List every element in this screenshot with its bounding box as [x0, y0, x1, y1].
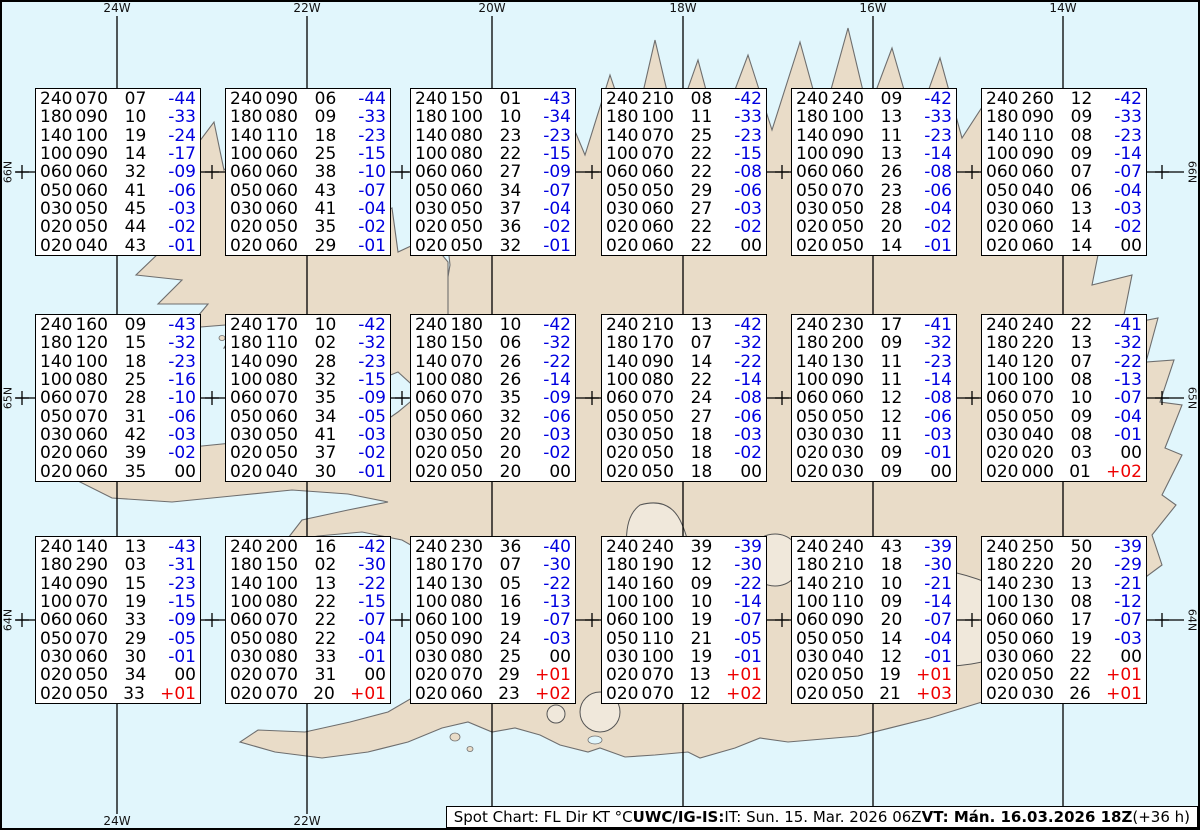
wind-direction: 050 — [831, 666, 863, 684]
flight-level-and-direction: 240210 — [606, 316, 674, 334]
flight-level-and-direction: 050050 — [796, 630, 864, 648]
flight-level-and-direction: 240090 — [230, 90, 298, 108]
flight-level-and-direction: 100080 — [230, 593, 298, 611]
temperature-c: -02 — [729, 444, 762, 462]
wind-speed-kt: 13 — [881, 108, 903, 126]
wind-direction: 070 — [641, 666, 673, 684]
wind-direction: 060 — [265, 200, 297, 218]
wind-direction: 050 — [265, 444, 297, 462]
wind-speed-kt: 20 — [500, 444, 522, 462]
temperature-c: -01 — [163, 237, 196, 255]
flight-level: 240 — [230, 538, 262, 556]
temperature-c: -14 — [729, 593, 762, 611]
spot-line-fl050: 05006041-06 — [40, 182, 196, 200]
wind-direction: 070 — [641, 685, 673, 703]
spot-line-fl100: 10008022-15 — [230, 593, 386, 611]
wind-speed-kt: 32 — [125, 163, 147, 181]
lon-label-top-14W: 14W — [1049, 1, 1076, 15]
wind-speed-kt: 19 — [125, 127, 147, 145]
temperature-c: -01 — [353, 463, 386, 481]
flight-level: 140 — [415, 353, 447, 371]
spot-line-fl020: 0200703100 — [230, 666, 386, 684]
flight-level: 030 — [796, 648, 828, 666]
flight-level-and-direction: 030030 — [796, 426, 864, 444]
spot-line-fl060: 06007022-07 — [230, 611, 386, 629]
flight-level-and-direction: 020060 — [606, 218, 674, 236]
wind-direction: 050 — [450, 463, 482, 481]
temperature-c: +01 — [350, 685, 386, 703]
flight-level-and-direction: 030080 — [415, 648, 483, 666]
wind-speed-kt: 17 — [881, 316, 903, 334]
wind-speed-kt: 29 — [498, 666, 520, 684]
temperature-c: -23 — [163, 353, 196, 371]
flight-level-and-direction: 020040 — [40, 237, 108, 255]
wind-speed-kt: 37 — [315, 444, 337, 462]
spot-line-fl180: 18020009-32 — [796, 334, 952, 352]
temperature-c: 00 — [538, 648, 571, 666]
flight-level-and-direction: 180120 — [40, 334, 108, 352]
wind-direction: 050 — [641, 182, 673, 200]
wind-speed-kt: 13 — [1071, 575, 1093, 593]
flight-level-and-direction: 240250 — [986, 538, 1054, 556]
spot-line-fl240: 24018010-42 — [415, 316, 571, 334]
flight-level: 020 — [986, 218, 1018, 236]
spot-line-fl240: 24024039-39 — [606, 538, 762, 556]
flight-level-and-direction: 180150 — [415, 334, 483, 352]
wind-speed-kt: 22 — [1071, 316, 1093, 334]
wind-speed-kt: 50 — [1071, 538, 1093, 556]
flight-level: 030 — [230, 200, 262, 218]
flight-level-and-direction: 180200 — [796, 334, 864, 352]
flight-level-and-direction: 030060 — [986, 200, 1054, 218]
spot-line-fl060: 06007010-07 — [986, 389, 1142, 407]
wind-direction: 060 — [1021, 218, 1053, 236]
wind-speed-kt: 39 — [125, 444, 147, 462]
flight-level: 020 — [796, 463, 828, 481]
temperature-c: +01 — [160, 685, 196, 703]
spot-line-fl020: 02004030-01 — [230, 463, 386, 481]
flight-level: 100 — [40, 593, 72, 611]
spot-box-65N-14W: 24024022-4118022013-3214012007-221001000… — [981, 314, 1147, 482]
wind-direction: 050 — [75, 218, 107, 236]
flight-level: 020 — [606, 444, 638, 462]
wind-speed-kt: 09 — [315, 108, 337, 126]
wind-direction: 110 — [265, 334, 297, 352]
temperature-c: -06 — [163, 182, 196, 200]
flight-level-and-direction: 030060 — [986, 648, 1054, 666]
temperature-c: +03 — [916, 685, 952, 703]
temperature-c: -31 — [163, 556, 196, 574]
flight-level-and-direction: 100100 — [606, 593, 674, 611]
temperature-c: -14 — [919, 593, 952, 611]
flight-level: 180 — [986, 334, 1018, 352]
wind-direction: 070 — [831, 182, 863, 200]
caption-center: UWC/IG-IS: — [633, 808, 725, 826]
spot-line-fl030: 03005028-04 — [796, 200, 952, 218]
flight-level: 100 — [415, 593, 447, 611]
spot-line-fl140: 14009028-23 — [230, 353, 386, 371]
wind-direction: 100 — [641, 108, 673, 126]
temperature-c: -29 — [1109, 556, 1142, 574]
flight-level-and-direction: 100090 — [796, 371, 864, 389]
spot-line-fl030: 03006042-03 — [40, 426, 196, 444]
temperature-c: 00 — [1109, 237, 1142, 255]
flight-level: 060 — [986, 611, 1018, 629]
spot-line-fl240: 24023017-41 — [796, 316, 952, 334]
temperature-c: -15 — [729, 145, 762, 163]
flight-level-and-direction: 060100 — [606, 611, 674, 629]
temperature-c: -05 — [353, 408, 386, 426]
spot-line-fl060: 06009020-07 — [796, 611, 952, 629]
flight-level-and-direction: 050060 — [986, 630, 1054, 648]
wind-direction: 130 — [831, 353, 863, 371]
spot-line-fl140: 14021010-21 — [796, 575, 952, 593]
flight-level: 060 — [415, 389, 447, 407]
flight-level: 050 — [606, 408, 638, 426]
wind-direction: 150 — [265, 556, 297, 574]
spot-line-fl050: 05009024-03 — [415, 630, 571, 648]
wind-speed-kt: 10 — [691, 593, 713, 611]
spot-line-fl020: 02005022+01 — [986, 666, 1142, 684]
wind-speed-kt: 02 — [315, 334, 337, 352]
temperature-c: -09 — [163, 163, 196, 181]
spot-line-fl100: 10011009-14 — [796, 593, 952, 611]
temperature-c: -10 — [353, 163, 386, 181]
temperature-c: -39 — [919, 538, 952, 556]
wind-speed-kt: 10 — [500, 316, 522, 334]
flight-level-and-direction: 060070 — [40, 389, 108, 407]
spot-line-fl020: 02007020+01 — [230, 685, 386, 703]
spot-box-65N-20W: 24018010-4218015006-3214007026-221000802… — [410, 314, 576, 482]
wind-speed-kt: 10 — [125, 108, 147, 126]
flight-level-and-direction: 050070 — [796, 182, 864, 200]
flight-level: 020 — [796, 685, 828, 703]
wind-speed-kt: 12 — [691, 556, 713, 574]
wind-speed-kt: 19 — [125, 593, 147, 611]
wind-direction: 100 — [1021, 371, 1053, 389]
spot-line-fl180: 18012015-32 — [40, 334, 196, 352]
flight-level: 100 — [606, 593, 638, 611]
flight-level-and-direction: 140110 — [986, 127, 1054, 145]
flight-level: 020 — [40, 444, 72, 462]
flight-level: 180 — [986, 108, 1018, 126]
wind-speed-kt: 45 — [125, 200, 147, 218]
wind-speed-kt: 27 — [691, 200, 713, 218]
spot-line-fl140: 14010018-23 — [40, 353, 196, 371]
wind-direction: 080 — [450, 145, 482, 163]
wind-direction: 020 — [1021, 444, 1053, 462]
flight-level: 060 — [415, 163, 447, 181]
temperature-c: -33 — [163, 108, 196, 126]
flight-level: 060 — [40, 611, 72, 629]
temperature-c: -14 — [919, 145, 952, 163]
spot-line-fl100: 10008026-14 — [415, 371, 571, 389]
temperature-c: -15 — [163, 593, 196, 611]
flight-level-and-direction: 140090 — [796, 127, 864, 145]
wind-speed-kt: 22 — [691, 218, 713, 236]
wind-direction: 070 — [641, 127, 673, 145]
spot-line-fl060: 06006027-09 — [415, 163, 571, 181]
flight-level-and-direction: 240150 — [415, 90, 483, 108]
spot-line-fl020: 02000001+02 — [986, 463, 1142, 481]
temperature-c: -07 — [1109, 163, 1142, 181]
wind-speed-kt: 29 — [691, 182, 713, 200]
wind-speed-kt: 33 — [123, 685, 145, 703]
temperature-c: -02 — [919, 218, 952, 236]
temperature-c: -06 — [538, 408, 571, 426]
wind-direction: 180 — [450, 316, 482, 334]
temperature-c: -05 — [729, 630, 762, 648]
flight-level: 140 — [415, 127, 447, 145]
flight-level: 240 — [796, 90, 828, 108]
spot-line-fl180: 18017007-30 — [415, 556, 571, 574]
flight-level-and-direction: 020070 — [230, 666, 298, 684]
flight-level-and-direction: 100060 — [230, 145, 298, 163]
wind-direction: 070 — [265, 666, 297, 684]
flight-level: 020 — [230, 666, 262, 684]
wind-speed-kt: 19 — [879, 666, 901, 684]
flight-level-and-direction: 030050 — [606, 426, 674, 444]
wind-direction: 050 — [265, 218, 297, 236]
flight-level: 050 — [415, 630, 447, 648]
spot-line-fl240: 24024022-41 — [986, 316, 1142, 334]
flight-level-and-direction: 020060 — [40, 444, 108, 462]
flight-level-and-direction: 020070 — [415, 666, 483, 684]
wind-speed-kt: 24 — [500, 630, 522, 648]
flight-level: 100 — [606, 145, 638, 163]
wind-speed-kt: 34 — [315, 408, 337, 426]
spot-box-65N-24W: 24016009-4318012015-3214010018-231000802… — [35, 314, 201, 482]
temperature-c: -03 — [729, 200, 762, 218]
wind-direction: 070 — [75, 389, 107, 407]
spot-line-fl140: 14013011-23 — [796, 353, 952, 371]
spot-line-fl180: 18015006-32 — [415, 334, 571, 352]
lon-label-top-18W: 18W — [669, 1, 696, 15]
flight-level-and-direction: 100080 — [415, 371, 483, 389]
temperature-c: -22 — [538, 575, 571, 593]
flight-level: 140 — [986, 353, 1018, 371]
wind-speed-kt: 18 — [691, 444, 713, 462]
flight-level: 140 — [230, 575, 262, 593]
flight-level-and-direction: 180220 — [986, 334, 1054, 352]
wind-direction: 070 — [265, 611, 297, 629]
flight-level: 050 — [986, 630, 1018, 648]
flight-level: 020 — [230, 218, 262, 236]
wind-direction: 070 — [450, 666, 482, 684]
wind-speed-kt: 12 — [1071, 90, 1093, 108]
lon-label-bottom-22W: 22W — [293, 814, 320, 828]
flight-level: 180 — [230, 334, 262, 352]
spot-box-66N-14W: 24026012-4218009009-3314011008-231000900… — [981, 88, 1147, 256]
temperature-c: -23 — [538, 127, 571, 145]
flight-level-and-direction: 050090 — [415, 630, 483, 648]
wind-direction: 260 — [1021, 90, 1053, 108]
wind-direction: 250 — [1021, 538, 1053, 556]
spot-line-fl180: 18019012-30 — [606, 556, 762, 574]
flight-level-and-direction: 240210 — [606, 90, 674, 108]
wind-direction: 060 — [450, 182, 482, 200]
temperature-c: 00 — [1109, 648, 1142, 666]
flight-level: 050 — [606, 182, 638, 200]
wind-direction: 240 — [1021, 316, 1053, 334]
flight-level-and-direction: 240240 — [796, 90, 864, 108]
flight-level-and-direction: 030040 — [986, 426, 1054, 444]
flight-level-and-direction: 020050 — [606, 463, 674, 481]
wind-direction: 040 — [831, 648, 863, 666]
wind-direction: 060 — [75, 444, 107, 462]
wind-speed-kt: 14 — [881, 630, 903, 648]
wind-direction: 170 — [641, 334, 673, 352]
flight-level-and-direction: 180170 — [606, 334, 674, 352]
flight-level-and-direction: 020060 — [986, 218, 1054, 236]
spot-line-fl140: 14010019-24 — [40, 127, 196, 145]
wind-speed-kt: 02 — [315, 556, 337, 574]
wind-direction: 070 — [450, 389, 482, 407]
wind-speed-kt: 11 — [881, 353, 903, 371]
temperature-c: -01 — [163, 648, 196, 666]
spot-line-fl240: 24007007-44 — [40, 90, 196, 108]
temperature-c: -23 — [919, 353, 952, 371]
wind-speed-kt: 09 — [1071, 108, 1093, 126]
flight-level: 020 — [230, 444, 262, 462]
temperature-c: -08 — [729, 389, 762, 407]
flight-level: 020 — [796, 444, 828, 462]
flight-level: 030 — [606, 648, 638, 666]
flight-level-and-direction: 140070 — [415, 353, 483, 371]
temperature-c: 00 — [919, 463, 952, 481]
spot-line-fl060: 06010019-07 — [606, 611, 762, 629]
wind-speed-kt: 01 — [1069, 463, 1091, 481]
flight-level: 020 — [986, 463, 1018, 481]
flight-level: 060 — [40, 163, 72, 181]
temperature-c: -32 — [919, 334, 952, 352]
wind-speed-kt: 32 — [500, 408, 522, 426]
wind-direction: 090 — [831, 611, 863, 629]
spot-line-fl020: 02005020-02 — [796, 218, 952, 236]
flight-level-and-direction: 240200 — [230, 538, 298, 556]
flight-level-and-direction: 180150 — [230, 556, 298, 574]
lon-label-bottom-24W: 24W — [103, 814, 130, 828]
temperature-c: -09 — [538, 163, 571, 181]
flight-level-and-direction: 050060 — [40, 182, 108, 200]
wind-direction: 050 — [1021, 408, 1053, 426]
wind-direction: 060 — [75, 611, 107, 629]
wind-direction: 080 — [265, 371, 297, 389]
flight-level: 180 — [796, 108, 828, 126]
spot-line-fl100: 10008032-15 — [230, 371, 386, 389]
spot-line-fl240: 24024043-39 — [796, 538, 952, 556]
flight-level: 240 — [230, 90, 262, 108]
flight-level: 060 — [230, 611, 262, 629]
wind-direction: 090 — [831, 145, 863, 163]
flight-level: 100 — [415, 145, 447, 163]
temperature-c: -21 — [919, 575, 952, 593]
flight-level: 140 — [986, 575, 1018, 593]
flight-level-and-direction: 100070 — [606, 145, 674, 163]
wind-direction: 050 — [450, 426, 482, 444]
temperature-c: -07 — [353, 182, 386, 200]
flight-level-and-direction: 100090 — [986, 145, 1054, 163]
wind-direction: 100 — [450, 611, 482, 629]
spot-line-fl060: 06010019-07 — [415, 611, 571, 629]
flight-level-and-direction: 060060 — [796, 163, 864, 181]
wind-speed-kt: 08 — [1071, 593, 1093, 611]
flight-level: 240 — [40, 90, 72, 108]
wind-speed-kt: 29 — [315, 237, 337, 255]
spot-line-fl100: 10006025-15 — [230, 145, 386, 163]
wind-direction: 070 — [75, 90, 107, 108]
temperature-c: -14 — [1109, 145, 1142, 163]
temperature-c: -42 — [353, 316, 386, 334]
temperature-c: -06 — [729, 182, 762, 200]
wind-speed-kt: 16 — [315, 538, 337, 556]
wind-direction: 050 — [831, 200, 863, 218]
temperature-c: -01 — [919, 444, 952, 462]
spot-line-fl060: 06007035-09 — [230, 389, 386, 407]
wind-speed-kt: 26 — [881, 163, 903, 181]
spot-line-fl050: 05006019-03 — [986, 630, 1142, 648]
spot-line-fl100: 10013008-12 — [986, 593, 1142, 611]
flight-level-and-direction: 140130 — [415, 575, 483, 593]
temperature-c: -03 — [919, 426, 952, 444]
spot-line-fl030: 0300802500 — [415, 648, 571, 666]
wind-speed-kt: 13 — [689, 666, 711, 684]
wind-speed-kt: 09 — [125, 316, 147, 334]
wind-direction: 080 — [450, 127, 482, 145]
wind-direction: 070 — [75, 630, 107, 648]
wind-direction: 060 — [1021, 630, 1053, 648]
flight-level-and-direction: 050060 — [230, 182, 298, 200]
flight-level: 060 — [606, 389, 638, 407]
flight-level-and-direction: 020020 — [986, 444, 1054, 462]
flight-level-and-direction: 020050 — [40, 218, 108, 236]
flight-level-and-direction: 180290 — [40, 556, 108, 574]
flight-level-and-direction: 180080 — [230, 108, 298, 126]
caption-forecast-step: (+36 h) — [1132, 808, 1190, 826]
flight-level: 180 — [415, 334, 447, 352]
wind-direction: 080 — [450, 371, 482, 389]
wind-speed-kt: 22 — [691, 371, 713, 389]
flight-level-and-direction: 180110 — [230, 334, 298, 352]
wind-direction: 120 — [1021, 353, 1053, 371]
lon-label-top-20W: 20W — [478, 1, 505, 15]
temperature-c: -32 — [538, 334, 571, 352]
wind-speed-kt: 41 — [125, 182, 147, 200]
spot-line-fl180: 18010013-33 — [796, 108, 952, 126]
wind-speed-kt: 15 — [125, 334, 147, 352]
wind-direction: 240 — [641, 538, 673, 556]
wind-speed-kt: 44 — [125, 218, 147, 236]
spot-line-fl030: 03006027-03 — [606, 200, 762, 218]
flight-level: 020 — [986, 685, 1018, 703]
wind-speed-kt: 13 — [1071, 334, 1093, 352]
flight-level-and-direction: 100090 — [40, 145, 108, 163]
wind-speed-kt: 18 — [881, 556, 903, 574]
spot-line-fl100: 10009013-14 — [796, 145, 952, 163]
wind-speed-kt: 11 — [691, 108, 713, 126]
spot-line-fl140: 14007025-23 — [606, 127, 762, 145]
spot-line-fl030: 03006041-04 — [230, 200, 386, 218]
wind-speed-kt: 28 — [315, 353, 337, 371]
wind-direction: 060 — [265, 408, 297, 426]
wind-speed-kt: 22 — [500, 145, 522, 163]
flight-level: 140 — [606, 575, 638, 593]
spot-line-fl100: 10009011-14 — [796, 371, 952, 389]
spot-line-fl240: 24016009-43 — [40, 316, 196, 334]
spot-line-fl180: 18010011-33 — [606, 108, 762, 126]
spot-line-fl060: 06006033-09 — [40, 611, 196, 629]
temperature-c: -33 — [919, 108, 952, 126]
